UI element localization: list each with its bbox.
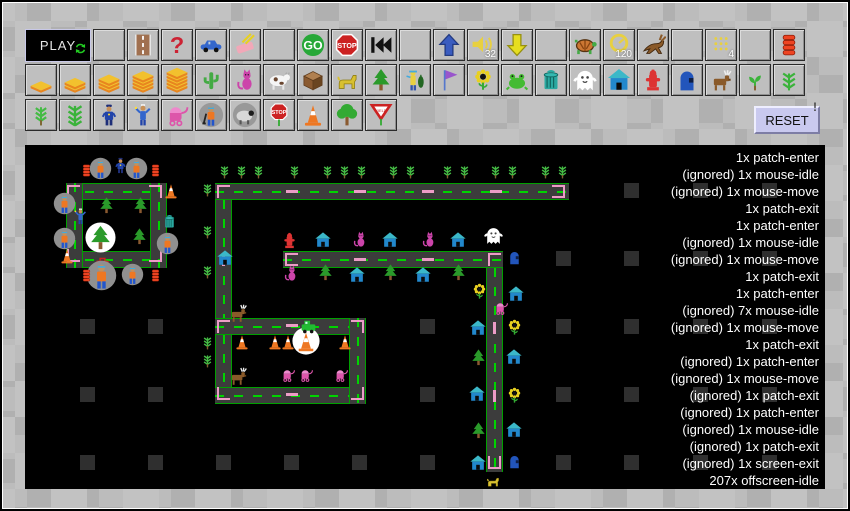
sprite-pine[interactable] [381,263,400,287]
toolbar-button-blank[interactable] [535,29,567,61]
toolbar-button-car[interactable] [195,29,227,61]
patch-marker [354,190,366,193]
patch-marker [149,185,162,198]
toolbar-button-turtle[interactable] [569,29,601,61]
sprite-moose[interactable] [227,365,249,392]
sprite-worker[interactable] [156,232,179,260]
sprite-moose[interactable] [227,302,249,329]
reset-hint-mark: ! [813,100,817,114]
toolbar-button-timer[interactable]: 120 [603,29,635,61]
toolbar-button-arrow-up[interactable] [433,29,465,61]
sprite-cone[interactable] [233,333,251,356]
sprite-wheat[interactable] [286,163,303,185]
grid-patch [80,455,95,470]
toolbar-button-moose[interactable] [705,64,737,96]
sprite-wheat[interactable] [199,181,216,203]
sprite-worker[interactable] [121,263,144,291]
toolbar-button-go[interactable]: GO [297,29,329,61]
sprite-wheat[interactable] [250,163,267,185]
toolbar-button-yield[interactable]: YIELD [365,99,397,131]
sprite-house[interactable] [314,231,332,254]
toolbar-button-cat[interactable] [229,64,261,96]
toolbar-button-dots[interactable]: 4 [705,29,737,61]
log-line: 1x patch-exit [399,268,819,285]
sprite-spool[interactable] [79,268,94,288]
svg-text:?: ? [170,32,184,58]
grid-patch [148,319,163,334]
sprite-wheat[interactable] [353,163,370,185]
toolbar-button-cactus[interactable] [195,64,227,96]
toolbar-button-spool[interactable] [773,29,805,61]
toolbar-button-tree[interactable] [331,99,363,131]
svg-text:STOP: STOP [337,42,357,50]
toolbar-button-road[interactable] [127,29,159,61]
toolbar-button-question[interactable]: ? [161,29,193,61]
sprite-cat[interactable] [281,264,300,288]
sprite-pine[interactable] [97,196,116,220]
sprite-cat[interactable] [350,230,369,254]
toolbar-button-blank[interactable] [739,29,771,61]
sprite-house[interactable] [216,249,234,272]
toolbar-button-stop-pole[interactable]: STOP [263,99,295,131]
grid-patch [352,455,367,470]
grid-patch [148,455,163,470]
toolbar-button-arrow-down[interactable] [501,29,533,61]
toolbar-button-fisherman[interactable] [399,64,431,96]
log-line: 1x patch-exit [399,336,819,353]
sprite-spool[interactable] [148,163,163,183]
toolbar-button-trash[interactable] [535,64,567,96]
sprite-wheat[interactable] [199,352,216,374]
svg-text:YIELD: YIELD [375,108,386,113]
toolbar-button-blank[interactable] [263,29,295,61]
sprite-cone[interactable] [58,247,76,270]
toolbar-button-tile-1[interactable] [25,64,57,96]
patch-marker [351,387,364,400]
log-line: 1x patch-enter [399,285,819,302]
toolbar-button-hydrant[interactable] [637,64,669,96]
sprite-wheat[interactable] [199,223,216,245]
log-line: (ignored) 1x patch-exit [399,438,819,455]
log-line: (ignored) 7x mouse-idle [399,302,819,319]
log-line: (ignored) 1x screen-exit [399,455,819,472]
sprite-pine[interactable] [316,263,335,287]
log-line: 1x patch-enter [399,149,819,166]
log-line: (ignored) 1x patch-exit [399,387,819,404]
toolbar-button-pine[interactable] [365,64,397,96]
app-window: PLAY ?GOSTOP321204 STOPYIELD RESET ! 1x … [2,2,848,509]
play-button[interactable]: PLAY [25,29,91,62]
toolbar-button-plant-big[interactable] [59,99,91,131]
sprite-wheat[interactable] [216,163,233,185]
toolbar-button-blank[interactable] [399,29,431,61]
toolbar-button-flag[interactable] [433,64,465,96]
sprite-stroller[interactable] [280,367,296,388]
toolbar-button-blank[interactable] [93,29,125,61]
svg-text:GO: GO [303,39,323,53]
toolbar-button-ghost[interactable] [569,64,601,96]
toolbar-button-tile-5[interactable] [161,64,193,96]
log-line: (ignored) 1x patch-enter [399,404,819,421]
sprite-pine[interactable] [131,196,150,220]
patch-marker [217,185,230,198]
sprite-cone[interactable] [162,182,180,205]
sprite-cone[interactable] [336,333,354,356]
sprite-stroller[interactable] [298,367,314,388]
log-line: (ignored) 1x mouse-move [399,251,819,268]
toolbar-button-digger[interactable] [195,99,227,131]
sprite-house[interactable] [381,231,399,254]
toolbar-button-blank[interactable] [671,29,703,61]
toolbar-button-cow[interactable] [263,64,295,96]
sprite-pine[interactable] [130,227,149,251]
button-count-label: 120 [615,49,632,60]
reset-button[interactable]: RESET [754,106,820,134]
sprite-worker[interactable] [89,157,112,185]
sprite-worker[interactable] [125,157,148,185]
log-line: (ignored) 1x mouse-move [399,183,819,200]
sprite-hydrant[interactable] [280,231,299,255]
grid-patch [148,387,163,402]
patch-marker [286,190,298,193]
log-line: (ignored) 1x patch-enter [399,353,819,370]
log-line: (ignored) 1x mouse-move [399,319,819,336]
play-label: PLAY [40,38,76,53]
refresh-icon [74,42,87,58]
toolbar-button-person[interactable] [127,99,159,131]
sprite-spool[interactable] [148,268,163,288]
sprite-wheat[interactable] [199,263,216,285]
sprite-wheat[interactable] [336,163,353,185]
toolbar-button-stroller[interactable] [161,99,193,131]
toolbar-button-tile-2[interactable] [59,64,91,96]
reset-label: RESET [765,113,808,128]
grid-patch [284,455,299,470]
toolbar-button-frog[interactable] [501,64,533,96]
log-line: (ignored) 1x mouse-idle [399,166,819,183]
grid-patch [80,387,95,402]
button-count-label: 32 [485,49,496,60]
event-log: 1x patch-enter(ignored) 1x mouse-idle(ig… [399,149,819,489]
log-line: (ignored) 1x mouse-idle [399,421,819,438]
sprite-house[interactable] [348,266,366,289]
log-line: (ignored) 1x mouse-move [399,370,819,387]
toolbar-button-stop-sign[interactable]: STOP [331,29,363,61]
log-line: 207x offscreen-idle [399,472,819,489]
toolbar-button-sprout[interactable] [739,64,771,96]
patch-marker [354,258,366,261]
button-count-label: 4 [728,49,734,60]
toolbar-button-cone[interactable] [297,99,329,131]
sprite-wheat[interactable] [319,163,336,185]
toolbar-button-dog[interactable] [331,64,363,96]
sprite-stroller[interactable] [333,367,349,388]
log-line: 1x patch-enter [399,217,819,234]
toolbar-button-tile-3[interactable] [93,64,125,96]
svg-text:STOP: STOP [272,110,287,116]
log-line: (ignored) 1x mouse-idle [399,234,819,251]
grid-patch [216,455,231,470]
toolbar-button-eraser[interactable] [229,29,261,61]
sprite-cone[interactable] [279,333,297,356]
toolbar-button-tile-4[interactable] [127,64,159,96]
toolbar-button-house[interactable] [603,64,635,96]
toolbar-button-wheat[interactable] [25,99,57,131]
toolbar-button-sheep[interactable] [229,99,261,131]
toolbar-button-plant[interactable] [773,64,805,96]
grid-patch [80,319,95,334]
toolbar-button-speaker[interactable]: 32 [467,29,499,61]
toolbar-button-sunflower[interactable] [467,64,499,96]
sprite-wheat[interactable] [233,163,250,185]
sprite-truck[interactable] [298,316,319,342]
log-line: 1x patch-exit [399,200,819,217]
toolbar-button-mailbox[interactable] [671,64,703,96]
toolbar-button-police[interactable] [93,99,125,131]
toolbar-button-rabbit[interactable] [637,29,669,61]
toolbar-button-crate[interactable] [297,64,329,96]
toolbar-button-rewind[interactable] [365,29,397,61]
patch-marker [351,320,364,333]
patch-marker [286,393,298,396]
